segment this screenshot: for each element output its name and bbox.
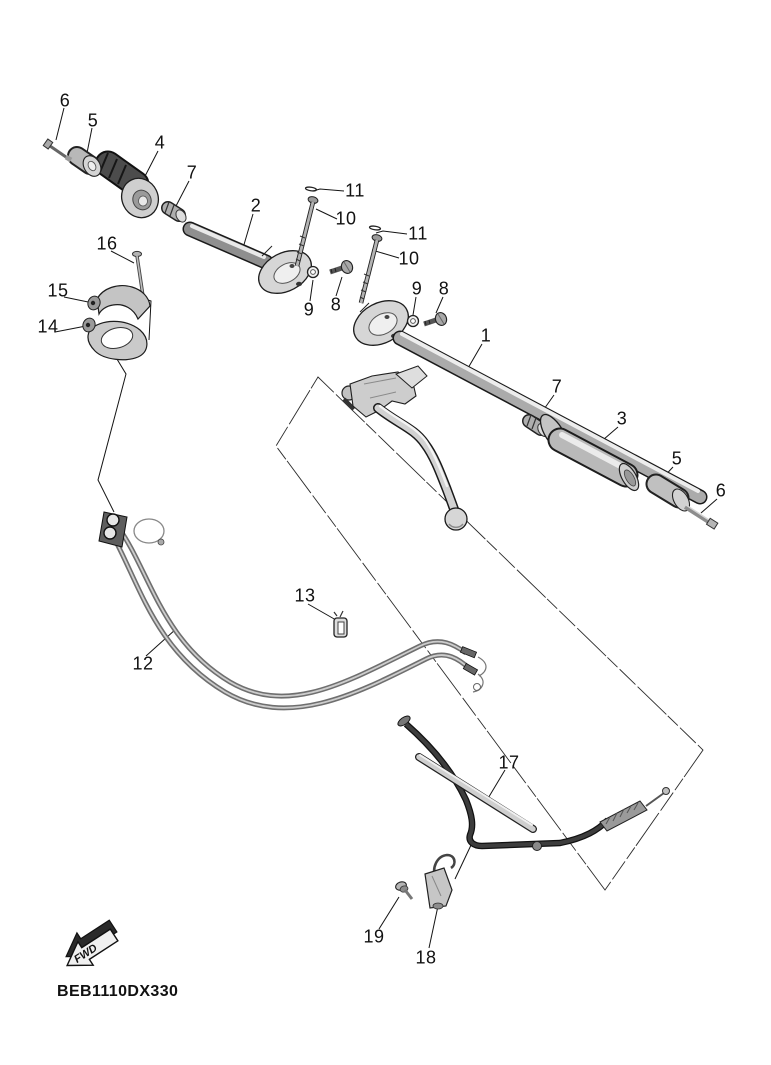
bracket-bolt-drawing: [394, 880, 412, 899]
clutch-cable-drawing: [396, 714, 669, 850]
pinch-bolt-b-drawing: [424, 311, 448, 327]
callout-7-right: 7: [552, 377, 563, 398]
callout-13: 13: [294, 586, 315, 607]
callout-12: 12: [132, 654, 153, 675]
washer-b-drawing: [408, 316, 419, 327]
parts-diagram-page: FWD 6 5 4 7 2 16 15 14 11 10 11 10 9 8 9…: [0, 0, 771, 1065]
callout-7-left: 7: [187, 163, 198, 184]
callout-5-right: 5: [672, 449, 683, 470]
part-code: BEB1110DX330: [57, 983, 178, 1001]
cable-clamp-clip-drawing: [334, 611, 347, 637]
callout-1: 1: [481, 326, 492, 347]
right-end-bolt-drawing: [685, 505, 718, 529]
left-grip-drawing: [100, 153, 165, 224]
callout-3: 3: [617, 409, 628, 430]
callout-18: 18: [415, 948, 436, 969]
pinch-bolt-a-drawing: [330, 259, 354, 275]
callout-14: 14: [37, 317, 58, 338]
clamp-upper-half-drawing: [86, 286, 150, 319]
diagram-artwork: FWD: [0, 0, 771, 1065]
clamp-bolt-a-drawing: [296, 186, 319, 266]
clamp-bolt-b-drawing: [360, 225, 383, 303]
left-collar-drawing: [165, 202, 188, 224]
callout-2: 2: [251, 196, 262, 217]
clamp-lower-half-drawing: [81, 316, 147, 359]
callout-10-a: 10: [335, 209, 356, 230]
callout-6-left: 6: [60, 91, 71, 112]
cable-bracket-drawing: [425, 855, 454, 909]
callout-10-b: 10: [398, 249, 419, 270]
left-end-bolt-drawing: [43, 139, 71, 160]
callout-11-a: 11: [345, 181, 365, 202]
clutch-lever-assembly-drawing: [342, 366, 467, 530]
callout-9-a: 9: [304, 300, 315, 321]
throttle-cables-drawing: [99, 512, 486, 708]
callout-16: 16: [96, 234, 117, 255]
callout-9-b: 9: [412, 279, 423, 300]
callout-17: 17: [498, 753, 519, 774]
callout-8-a: 8: [331, 295, 342, 316]
callout-5-left: 5: [88, 111, 99, 132]
washer-a-drawing: [308, 267, 319, 278]
callout-15: 15: [47, 281, 68, 302]
callout-6-right: 6: [716, 481, 727, 502]
callout-4: 4: [155, 133, 166, 154]
callout-11-b: 11: [408, 224, 428, 245]
fwd-arrow: FWD: [55, 914, 125, 977]
callout-8-b: 8: [439, 279, 450, 300]
callout-19: 19: [363, 927, 384, 948]
